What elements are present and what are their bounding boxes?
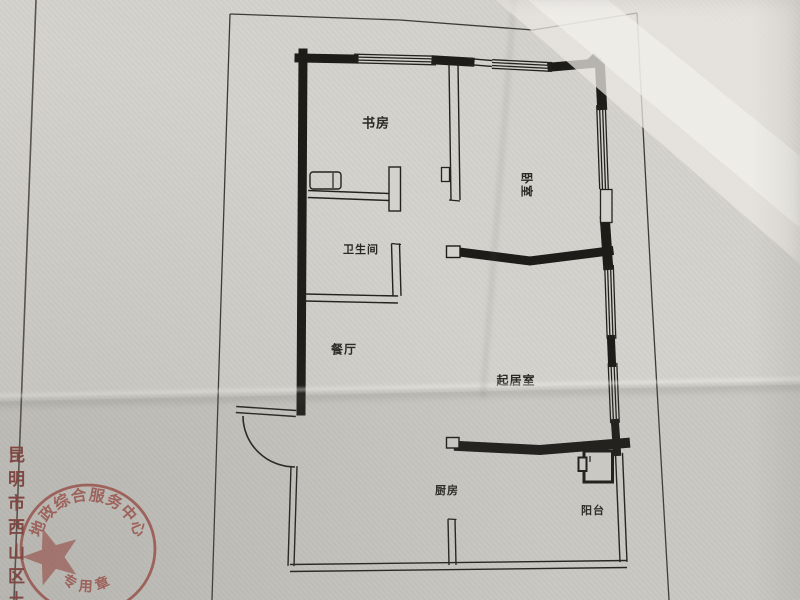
- frame-right: [637, 13, 669, 600]
- official-stamp: 地政综合服务中心 专用章: [21, 485, 155, 600]
- wall-double-line: [290, 561, 627, 565]
- wall-top-c: [552, 63, 597, 67]
- floor-plan-drawing: 地政综合服务中心 专用章: [0, 0, 800, 600]
- window-symbol: [600, 105, 603, 189]
- wall-double-line: [308, 191, 389, 194]
- window-symbol: [605, 105, 608, 189]
- wall-right-b: [611, 339, 612, 363]
- wall-double-line: [236, 412, 296, 416]
- window-symbol: [605, 265, 608, 339]
- room-label-dining: 餐厅: [331, 341, 357, 358]
- room-label-bathroom: 卫生间: [343, 241, 379, 257]
- wall-top-a: [299, 58, 354, 59]
- window-symbol: [492, 60, 552, 63]
- wall-double-line: [448, 519, 449, 565]
- wall-left: [301, 53, 303, 411]
- svg-text:专用章: 专用章: [59, 571, 112, 596]
- wall-end-cap: [449, 200, 460, 201]
- wall-double-line: [305, 301, 398, 303]
- window-symbol: [354, 57, 436, 59]
- door-jamb: [442, 168, 450, 182]
- wall-double-line: [455, 519, 456, 565]
- side-vertical-text: 昆明市西山区土: [8, 444, 28, 600]
- window-symbol: [492, 68, 552, 71]
- svg-text:地政综合服务中心: 地政综合服务中心: [26, 485, 150, 540]
- wall-double-line: [290, 567, 627, 571]
- window-symbol: [354, 60, 436, 62]
- right-wall-pillar: [601, 190, 613, 223]
- wall-double-line: [392, 244, 394, 296]
- bathroom-fixture: [310, 172, 341, 189]
- wall-double-line: [308, 197, 389, 200]
- wall-double-line: [616, 453, 621, 562]
- window-symbol: [613, 265, 616, 339]
- wall-double-line: [622, 453, 627, 562]
- wall-top-b: [436, 60, 470, 62]
- frame-top: [230, 13, 637, 30]
- window-symbol: [354, 54, 436, 56]
- room-label-bedroom: 卧室: [519, 172, 536, 198]
- wall-double-line: [458, 64, 460, 200]
- window-symbol: [602, 105, 605, 189]
- wall-notch: [447, 438, 460, 449]
- bathroom-wall-cap: [389, 167, 401, 211]
- wall-double-line: [305, 294, 398, 296]
- room-label-study: 书房: [362, 113, 390, 132]
- balcony-fixture: [579, 451, 613, 482]
- entry-door-arc: [243, 416, 295, 467]
- wall-double-line: [236, 407, 296, 411]
- wall-double-line: [294, 466, 297, 566]
- wall-living-bottom: [459, 443, 625, 450]
- wall-corner-topright: [594, 60, 602, 105]
- window-symbol: [617, 363, 620, 423]
- window-symbol: [608, 363, 611, 423]
- stamp-arc-text: 地政综合服务中心: [26, 485, 150, 540]
- frame-left: [212, 14, 230, 600]
- wall-double-line: [399, 243, 401, 296]
- window-symbol: [597, 105, 600, 189]
- stamp-bottom-text: 专用章: [59, 571, 112, 596]
- window-symbol: [492, 63, 552, 66]
- wall-notch: [447, 246, 461, 258]
- window-symbol: [611, 363, 614, 423]
- window-symbol: [610, 265, 613, 339]
- wall-mid-horizontal: [459, 251, 609, 261]
- wall-right-a: [605, 221, 608, 265]
- room-label-kitchen: 厨房: [435, 482, 459, 498]
- window-symbol: [354, 63, 436, 65]
- window-symbol: [614, 363, 617, 423]
- window-symbol: [608, 265, 611, 339]
- window-symbol: [492, 65, 552, 68]
- wall-end-cap: [448, 519, 457, 520]
- wall-double-line: [288, 466, 291, 566]
- room-label-balcony: 阳台: [581, 502, 605, 518]
- room-label-living: 起居室: [496, 372, 535, 389]
- photographed-floorplan-document: 地政综合服务中心 专用章 书房 卧室 卫生间 餐厅 起居室 厨房 阳台 昆明市西…: [0, 0, 800, 600]
